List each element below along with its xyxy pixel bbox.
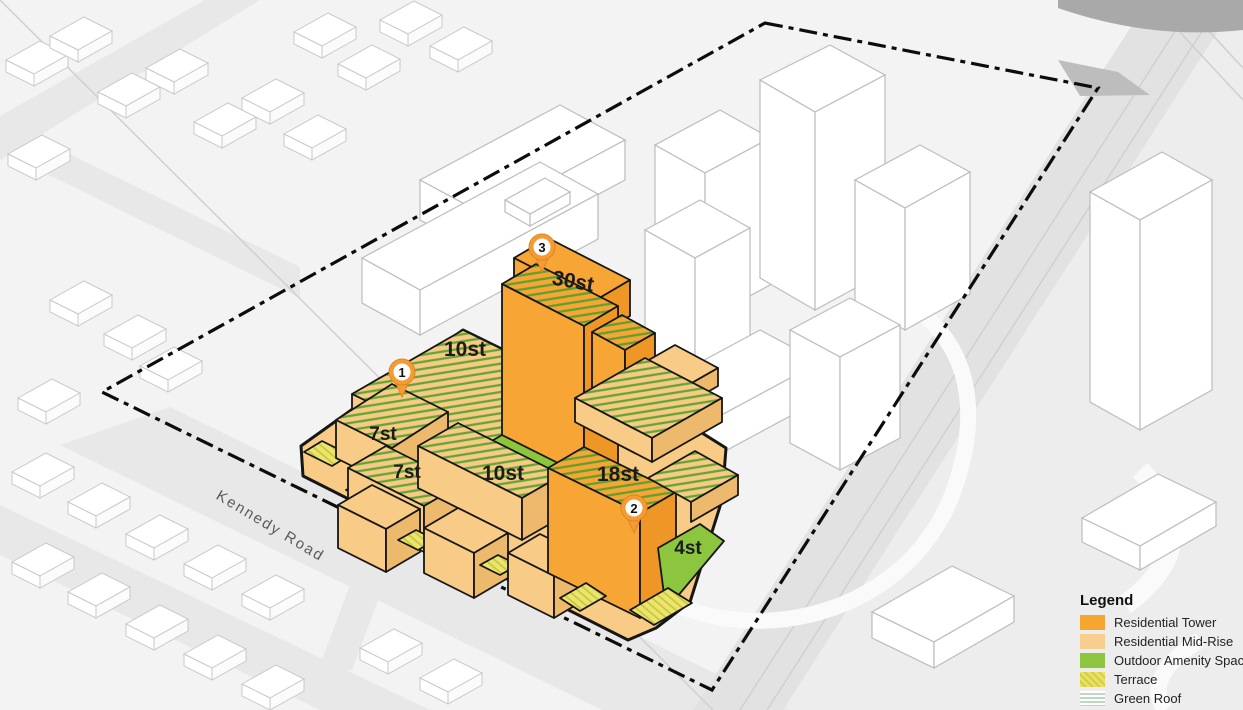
label-10st-mid: 10st — [482, 462, 524, 485]
label-7st-west: 7st — [369, 424, 397, 445]
context-tower-east — [1090, 152, 1212, 430]
legend-swatch-green-roof — [1080, 691, 1105, 706]
legend-item-residential-tower: Residential Tower — [1080, 615, 1243, 630]
legend: Legend Residential Tower Residential Mid… — [1080, 592, 1243, 710]
legend-swatch-residential-tower — [1080, 615, 1105, 630]
legend-label: Residential Tower — [1114, 615, 1216, 630]
marker-1-number: 1 — [398, 365, 405, 380]
legend-label: Green Roof — [1114, 691, 1181, 706]
site-massing-diagram: 10st 30st 7st 7st 10st 18st 4st Kennedy … — [0, 0, 1243, 710]
legend-title: Legend — [1080, 592, 1243, 609]
legend-item-terrace: Terrace — [1080, 672, 1243, 687]
legend-item-outdoor-amenity: Outdoor Amenity Space — [1080, 653, 1243, 668]
label-18st: 18st — [597, 463, 639, 486]
legend-label: Outdoor Amenity Space — [1114, 653, 1243, 668]
legend-swatch-outdoor-amenity — [1080, 653, 1105, 668]
label-10st-north: 10st — [444, 338, 486, 361]
legend-label: Residential Mid-Rise — [1114, 634, 1233, 649]
label-7st-mid: 7st — [393, 462, 421, 483]
marker-3-number: 3 — [538, 240, 545, 255]
legend-swatch-terrace — [1080, 672, 1105, 687]
marker-2-number: 2 — [630, 501, 637, 516]
label-4st: 4st — [674, 538, 702, 559]
legend-item-residential-midrise: Residential Mid-Rise — [1080, 634, 1243, 649]
legend-swatch-residential-midrise — [1080, 634, 1105, 649]
legend-item-green-roof: Green Roof — [1080, 691, 1243, 706]
diagram-canvas: 10st 30st 7st 7st 10st 18st 4st Kennedy … — [0, 0, 1243, 710]
legend-label: Terrace — [1114, 672, 1157, 687]
